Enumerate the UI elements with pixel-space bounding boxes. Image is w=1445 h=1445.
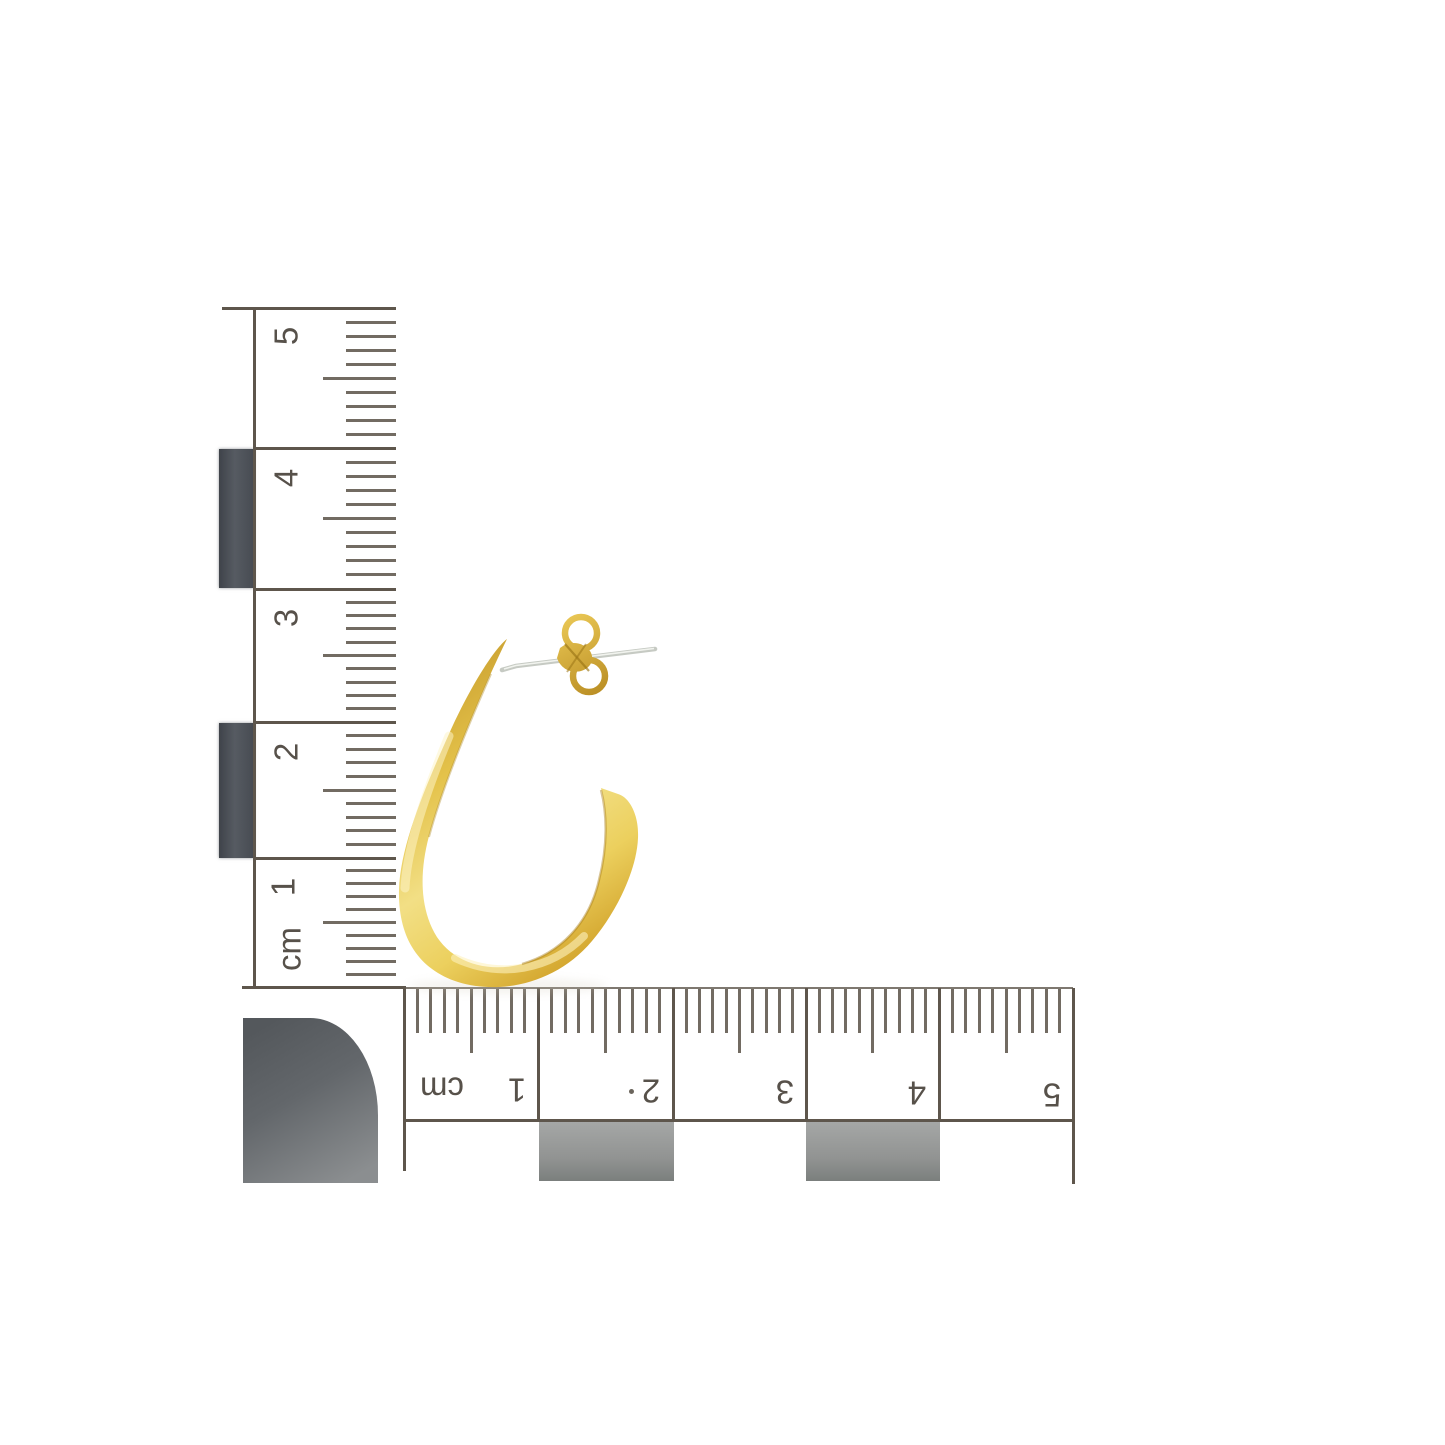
mm-tick xyxy=(1031,989,1034,1033)
mm-tick xyxy=(346,335,396,338)
cm-line xyxy=(938,988,941,1121)
mm-tick xyxy=(346,433,396,436)
mm-tick xyxy=(346,363,396,366)
mm-tick xyxy=(778,989,781,1033)
mm-tick xyxy=(323,377,396,380)
mm-tick xyxy=(991,989,994,1033)
earring-photo xyxy=(380,592,680,1017)
vertical-ruler-label-5: 5 xyxy=(270,327,303,345)
mm-tick xyxy=(751,989,754,1033)
photo-stage: 5 4 3 2 1 cm cm 1 2 3 4 5 xyxy=(0,0,1445,1445)
hoop-body xyxy=(399,639,638,987)
mm-tick xyxy=(346,531,396,534)
ruler-edge-line xyxy=(253,308,256,987)
mm-tick xyxy=(911,989,914,1033)
mm-tick xyxy=(346,475,396,478)
vertical-ruler-label-3: 3 xyxy=(270,609,303,627)
mm-tick xyxy=(898,989,901,1033)
mm-tick xyxy=(698,989,701,1033)
cm-line xyxy=(254,721,396,724)
mm-tick xyxy=(1005,989,1008,1053)
calibration-block xyxy=(539,1122,674,1181)
gold-hoop xyxy=(399,639,638,987)
mm-tick xyxy=(725,989,728,1033)
mm-tick xyxy=(1045,989,1048,1033)
mm-tick xyxy=(685,989,688,1033)
mm-tick xyxy=(346,419,396,422)
mm-tick xyxy=(818,989,821,1033)
cm-line xyxy=(254,857,396,860)
mm-tick xyxy=(346,545,396,548)
cm-line xyxy=(1072,988,1075,1184)
horizontal-ruler-label-cm: cm xyxy=(420,1073,464,1106)
mm-tick xyxy=(871,989,874,1053)
horizontal-ruler-label-5: 5 xyxy=(1043,1079,1061,1112)
cm-line xyxy=(805,988,808,1121)
calibration-block xyxy=(219,723,254,858)
vertical-ruler-label-4: 4 xyxy=(270,469,303,487)
mm-tick xyxy=(346,503,396,506)
mm-tick xyxy=(323,517,396,520)
mm-tick xyxy=(346,559,396,562)
mm-tick xyxy=(346,461,396,464)
mm-tick xyxy=(978,989,981,1033)
mm-tick xyxy=(346,321,396,324)
mm-tick xyxy=(346,489,396,492)
vertical-ruler-label-2: 2 xyxy=(270,743,303,761)
corner-quarter-circle-marker xyxy=(243,1018,378,1183)
mm-tick xyxy=(951,989,954,1033)
cm-line xyxy=(254,447,396,450)
mm-tick xyxy=(844,989,847,1033)
mm-tick xyxy=(964,989,967,1033)
vertical-ruler-label-1: 1 xyxy=(267,878,300,896)
horizontal-ruler-label-1: 1 xyxy=(508,1074,526,1107)
mm-tick xyxy=(1018,989,1021,1033)
mm-tick xyxy=(711,989,714,1033)
cm-line xyxy=(254,588,396,591)
horizontal-ruler-label-2: 2 xyxy=(642,1075,660,1108)
calibration-block xyxy=(806,1122,940,1181)
mm-tick xyxy=(346,349,396,352)
mm-tick xyxy=(884,989,887,1033)
horizontal-ruler-label-4: 4 xyxy=(908,1077,926,1110)
mm-tick xyxy=(765,989,768,1033)
mm-tick xyxy=(831,989,834,1033)
mm-tick xyxy=(791,989,794,1033)
mm-tick xyxy=(858,989,861,1033)
dust-speck xyxy=(629,1089,634,1094)
mm-tick xyxy=(924,989,927,1033)
mm-tick xyxy=(1058,989,1061,1033)
mm-tick xyxy=(346,573,396,576)
mm-tick xyxy=(738,989,741,1053)
mm-tick xyxy=(346,391,396,394)
vertical-ruler-label-cm: cm xyxy=(273,927,306,971)
mm-tick xyxy=(346,405,396,408)
cm-line xyxy=(222,307,396,310)
horizontal-ruler-label-3: 3 xyxy=(776,1076,794,1109)
ruler-edge-line xyxy=(403,1119,1075,1122)
calibration-block xyxy=(219,449,254,588)
